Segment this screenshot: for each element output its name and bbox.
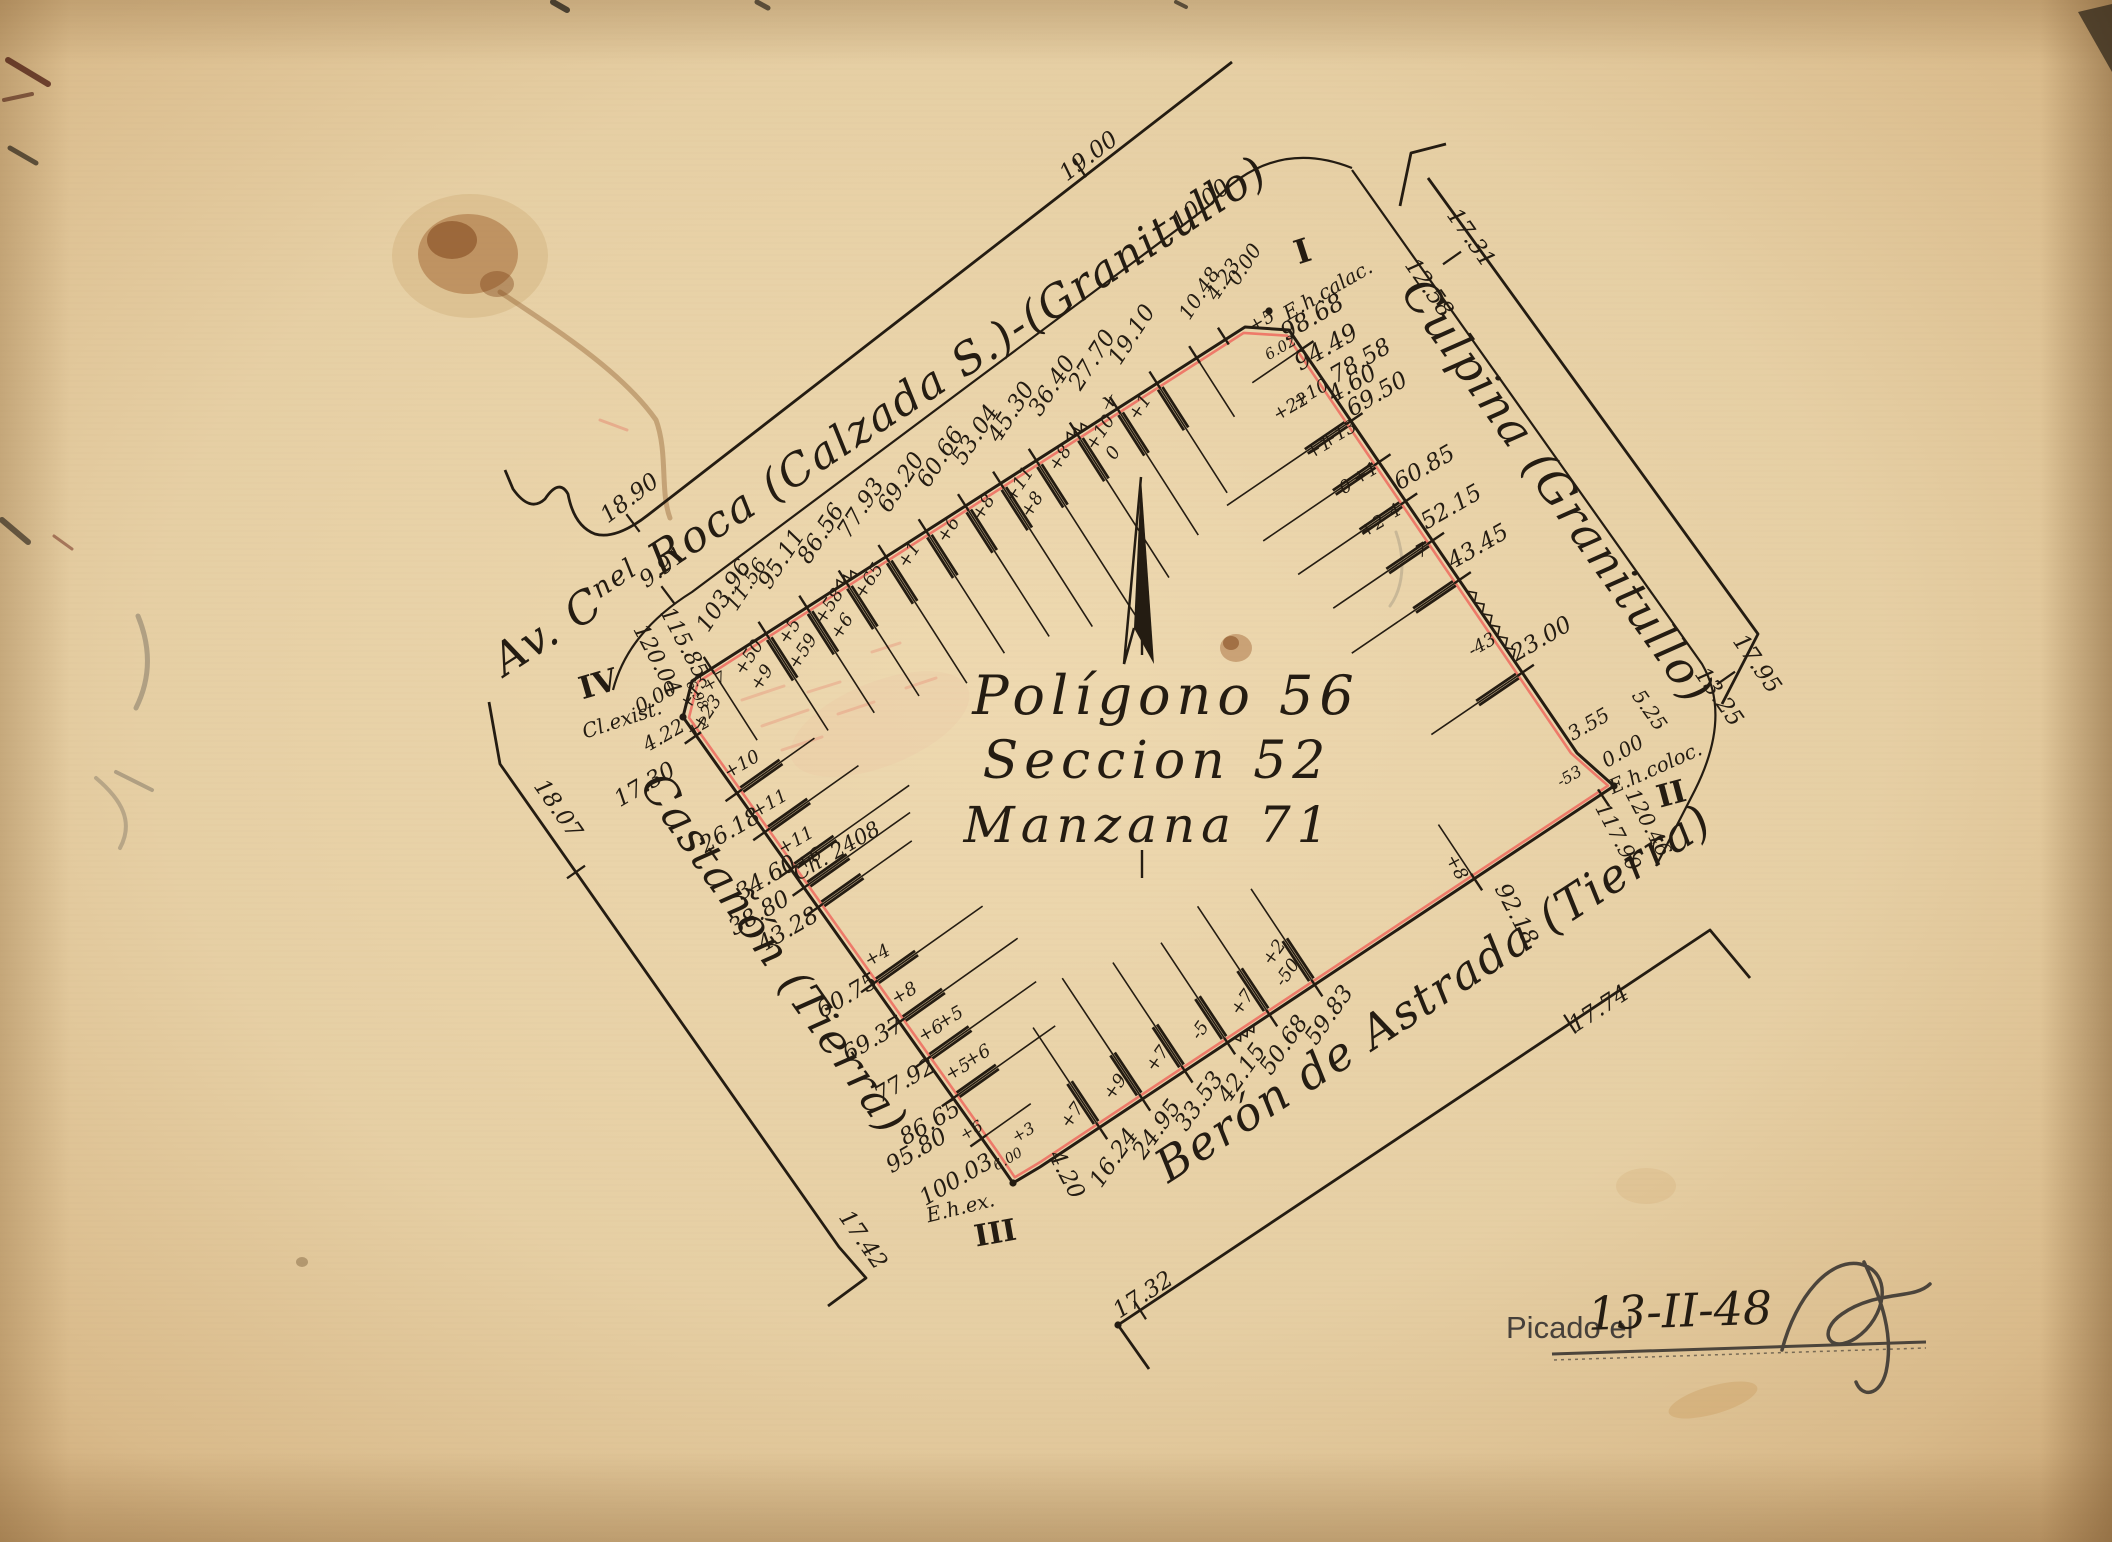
corner-dot bbox=[1009, 1179, 1016, 1186]
title-poligono: Polígono 56 bbox=[971, 664, 1359, 727]
vignette-top bbox=[0, 0, 2112, 64]
vignette-bottom bbox=[0, 1452, 2112, 1542]
corner-dot bbox=[679, 713, 686, 720]
stain bbox=[1223, 636, 1239, 650]
title-block: Polígono 56 Seccion 52 Manzana 71 bbox=[963, 664, 1360, 854]
title-manzana: Manzana 71 bbox=[963, 796, 1335, 854]
cadastral-plan-drawing: 19.10+127.70+10036.40+845.30+11+853.04+8… bbox=[0, 0, 2112, 1542]
stain bbox=[1616, 1168, 1676, 1204]
title-seccion: Seccion 52 bbox=[983, 731, 1332, 791]
stain bbox=[480, 271, 514, 297]
scanned-survey-sheet: 19.10+127.70+10036.40+845.30+11+853.04+8… bbox=[0, 0, 2112, 1542]
vignette-right bbox=[2040, 0, 2112, 1542]
date-value: 13-II-48 bbox=[1587, 1280, 1773, 1340]
stain bbox=[427, 221, 477, 259]
stain bbox=[296, 1257, 308, 1267]
annotation-label: III bbox=[972, 1213, 1020, 1255]
vignette-left bbox=[0, 0, 70, 1542]
